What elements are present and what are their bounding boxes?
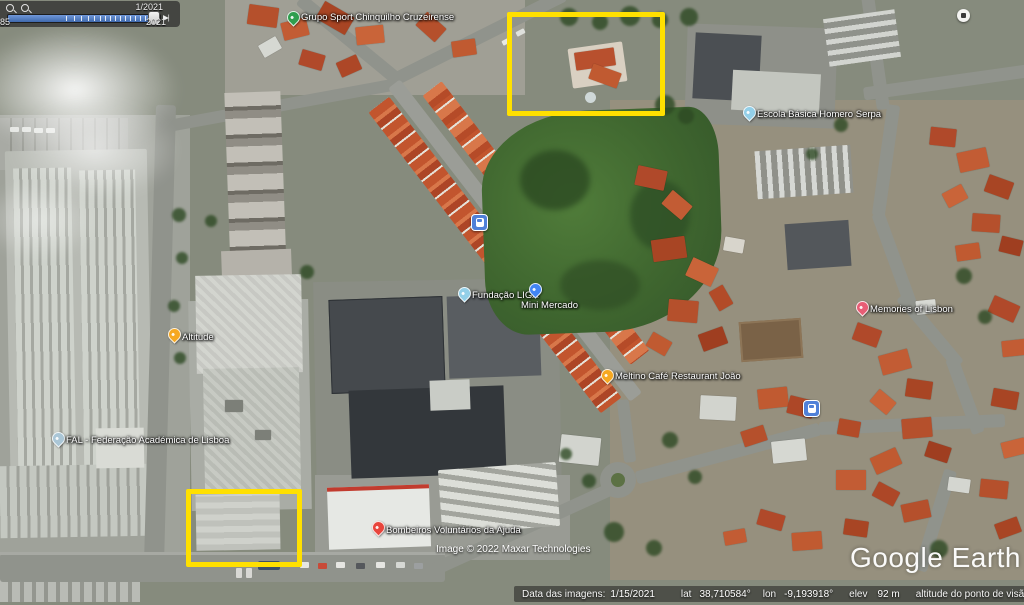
lat-label: lat — [681, 589, 692, 600]
poi-label-memories[interactable]: Memories of Lisbon — [870, 304, 953, 315]
eye-altitude-label: altitude do ponto de visão — [916, 589, 1024, 600]
poi-label-meltino[interactable]: Meltino Café Restaurant João — [615, 371, 741, 382]
poi-label-grupo-sport[interactable]: Grupo Sport Chinquilho Cruzeirense — [301, 12, 454, 23]
parking-lot — [754, 145, 853, 200]
time-slider-panel[interactable]: 1/2021 ▶| 1985 2021 — [0, 1, 180, 27]
lon-label: lon — [763, 589, 776, 600]
parking-lot — [823, 9, 901, 67]
imagery-credit: Image © 2022 Maxar Technologies — [436, 544, 591, 555]
status-bar: Data das imagens: 1/15/2021 lat 38,71058… — [514, 586, 1024, 602]
lon-value: -9,193918° — [784, 589, 833, 600]
highlight-box-top — [507, 12, 665, 116]
poi-label-fal[interactable]: FAL - Federação Académica de Lisboa — [66, 435, 229, 446]
timeline-start-year: 1985 — [0, 17, 10, 27]
dark-warehouse — [328, 296, 445, 394]
satellite-map[interactable]: Grupo Sport Chinquilho Cruzeirense Escol… — [0, 0, 1024, 605]
highlight-box-bottom — [186, 489, 302, 567]
bus-stop-icon[interactable] — [471, 214, 488, 231]
white-building — [195, 274, 303, 374]
timeline-zoom-in-icon[interactable] — [21, 4, 29, 12]
poi-label-bombeiros[interactable]: Bombeiros Voluntários da Ajuda — [386, 525, 521, 536]
imagery-date-label: Data das imagens: — [522, 589, 605, 600]
photo-icon[interactable] — [957, 9, 970, 22]
poi-label-escola[interactable]: Escola Básica Homero Serpa — [757, 109, 881, 120]
google-earth-watermark: Google Earth — [850, 542, 1021, 574]
sports-court — [739, 318, 804, 362]
bus-stop-icon[interactable] — [803, 400, 820, 417]
poi-label-altitude[interactable]: Altitude — [182, 332, 214, 343]
poi-label-mini-mercado[interactable]: Mini Mercado — [521, 300, 578, 311]
greenhouses — [438, 462, 560, 534]
imagery-date-value: 1/15/2021 — [610, 589, 655, 600]
timeline-zoom-out-icon[interactable] — [6, 4, 14, 12]
elev-label: elev — [849, 589, 867, 600]
timeline-track[interactable] — [7, 14, 161, 23]
fire-station — [327, 484, 431, 550]
timeline-end-year: 2021 — [146, 17, 166, 27]
lat-value: 38,710584° — [699, 589, 750, 600]
elev-value: 92 m — [878, 589, 900, 600]
